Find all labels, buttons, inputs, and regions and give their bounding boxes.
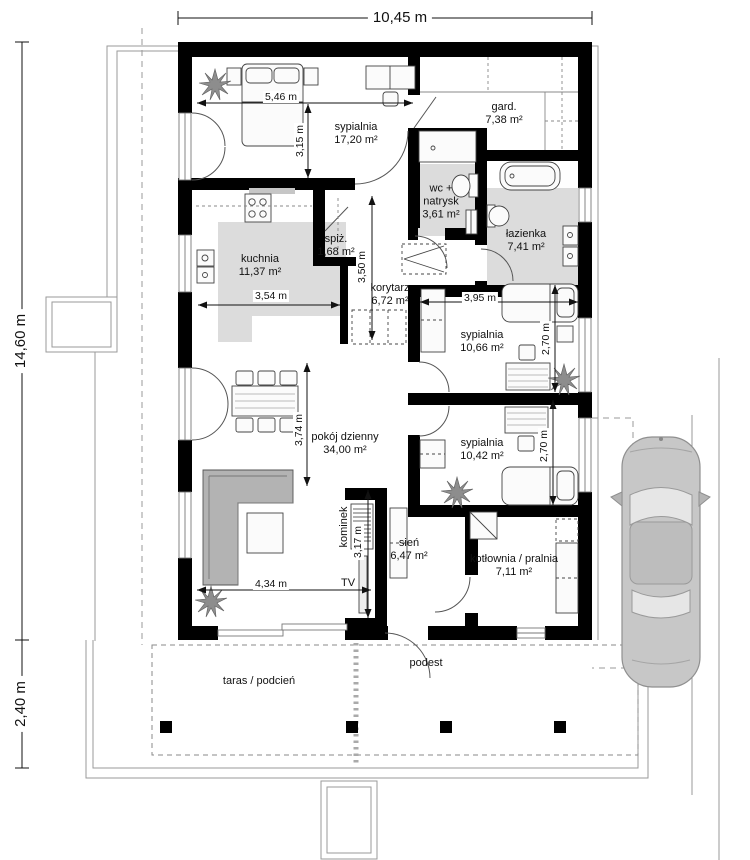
room-label-kitchen: kuchnia 11,37 m² (239, 253, 282, 279)
landing-label: podest (409, 657, 442, 669)
dim-living-lower-height: 3,17 m (352, 524, 364, 560)
room-label-boiler-laundry: kotłownia / pralnia 7,11 m² (470, 553, 558, 579)
fireplace-label: kominek (338, 507, 350, 548)
dim-terrace-depth: 2,40 m (15, 676, 27, 732)
dim-overall-height: 14,60 m (15, 309, 27, 373)
room-label-bedroom-3: sypialnia 10,42 m² (460, 437, 503, 463)
dim-kitchen-width: 3,54 m (253, 290, 289, 302)
house-floor-plan: 10,45 m 14,60 m 2,40 m 5,46 m 3,15 m 3,5… (0, 0, 750, 860)
room-label-corridor: korytarz 6,72 m² (370, 282, 409, 308)
dim-bedroom1-width: 5,46 m (263, 91, 299, 103)
room-label-wc-shower: wc + natrysk 3,61 m² (413, 183, 469, 222)
room-label-pantry: spiż. 1,68 m² (317, 233, 354, 259)
room-label-living-room: pokój dzienny 34,00 m² (311, 431, 378, 457)
room-label-wardrobe: gard. 7,38 m² (485, 101, 522, 127)
room-label-bathroom: łazienka 7,41 m² (506, 228, 546, 254)
room-label-bedroom-2: sypialnia 10,66 m² (460, 329, 503, 355)
car-top-view (611, 437, 710, 687)
dim-bedroom2-height: 2,70 m (540, 321, 552, 357)
plot-outline (46, 28, 719, 860)
dim-bedroom1-height: 3,15 m (294, 123, 306, 159)
dim-bedroom2-width: 3,95 m (462, 292, 498, 304)
tv-label: TV (341, 577, 355, 589)
dim-overall-width: 10,45 m (368, 12, 432, 24)
room-label-bedroom-main: sypialnia 17,20 m² (334, 121, 377, 147)
dim-living-upper-height: 3,74 m (293, 412, 305, 448)
dim-kitchen-height: 3,50 m (356, 249, 368, 285)
room-label-hall: sień 6,47 m² (390, 537, 427, 563)
terrace-pillars (160, 721, 566, 733)
dim-living-width: 4,34 m (253, 578, 289, 590)
dim-bedroom3-height: 2,70 m (538, 428, 550, 464)
terrace-label: taras / podcień (223, 675, 295, 687)
